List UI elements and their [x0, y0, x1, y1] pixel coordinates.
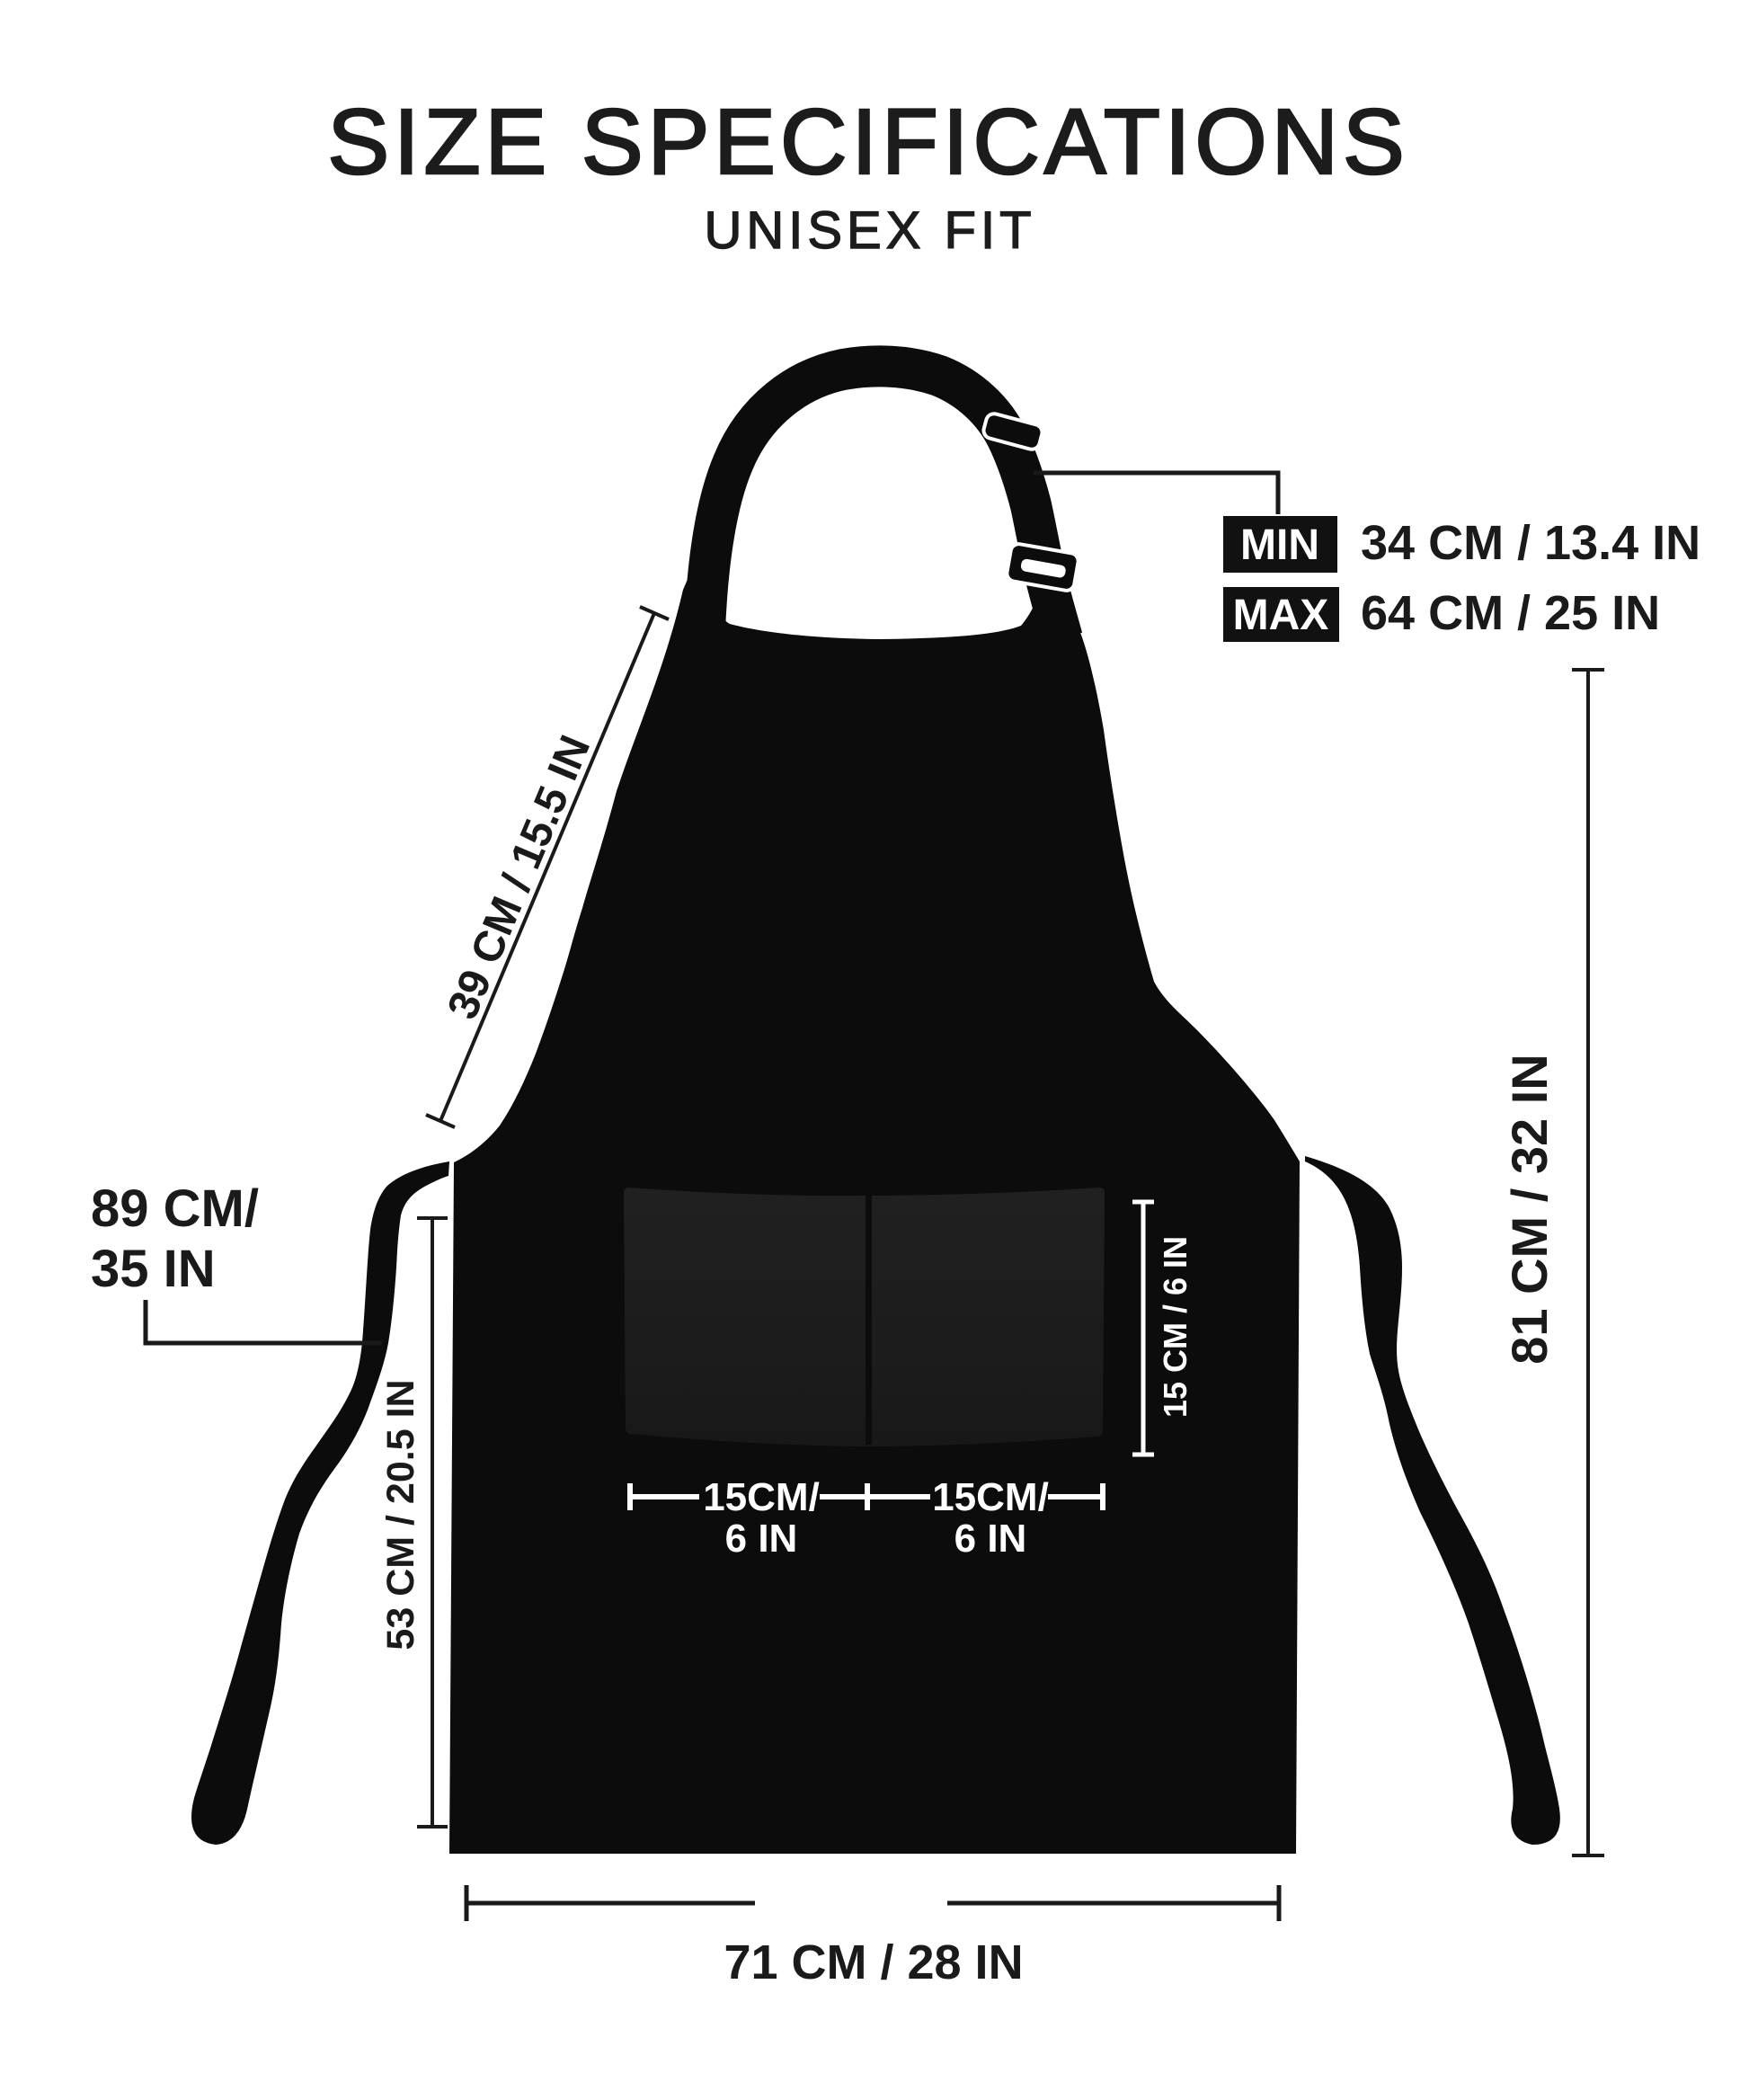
- svg-text:15CM/: 15CM/: [703, 1475, 820, 1519]
- svg-text:35 IN: 35 IN: [91, 1240, 216, 1298]
- svg-text:53 CM / 20.5 IN: 53 CM / 20.5 IN: [379, 1379, 422, 1650]
- svg-text:64 CM / 25 IN: 64 CM / 25 IN: [1361, 586, 1660, 640]
- svg-text:MIN: MIN: [1240, 521, 1319, 569]
- svg-text:81 CM / 32 IN: 81 CM / 32 IN: [1501, 1054, 1558, 1364]
- svg-text:15 CM / 6 IN: 15 CM / 6 IN: [1157, 1236, 1194, 1418]
- svg-text:15CM/: 15CM/: [932, 1475, 1049, 1519]
- svg-text:UNISEX FIT: UNISEX FIT: [704, 201, 1035, 260]
- svg-text:34 CM / 13.4 IN: 34 CM / 13.4 IN: [1361, 516, 1700, 570]
- svg-text:MAX: MAX: [1233, 592, 1329, 639]
- svg-text:6 IN: 6 IN: [954, 1517, 1027, 1561]
- svg-text:89 CM/: 89 CM/: [91, 1179, 259, 1238]
- svg-text:71 CM / 28 IN: 71 CM / 28 IN: [724, 1935, 1023, 1989]
- svg-text:SIZE SPECIFICATIONS: SIZE SPECIFICATIONS: [327, 90, 1408, 193]
- svg-text:6 IN: 6 IN: [725, 1517, 798, 1561]
